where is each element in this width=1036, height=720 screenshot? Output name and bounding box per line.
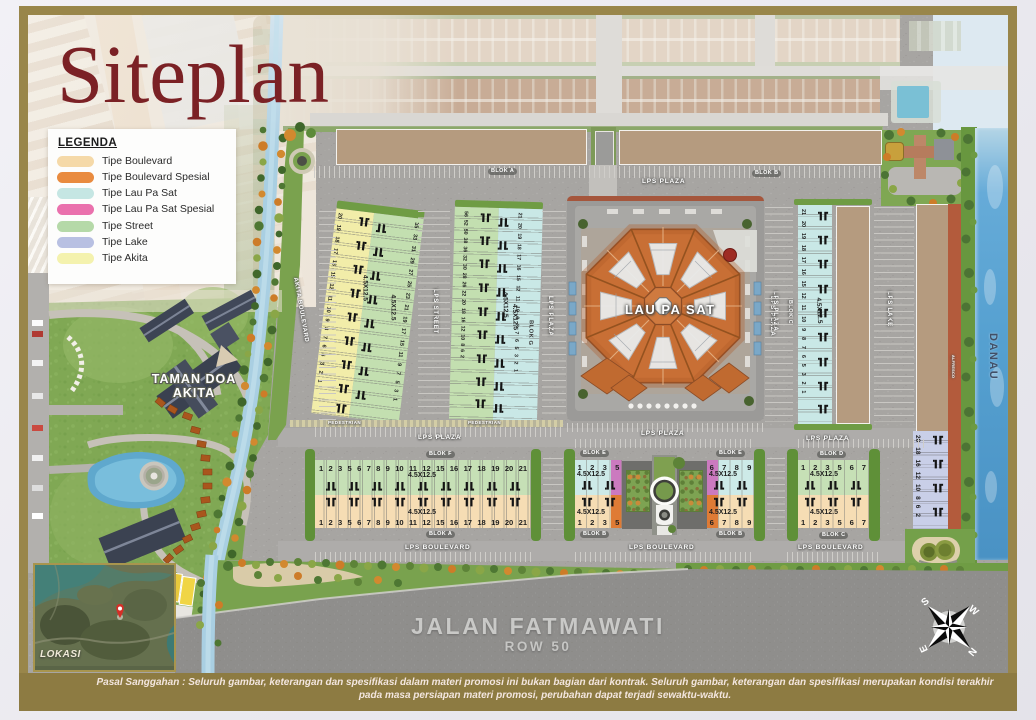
svg-text:W: W <box>966 604 981 619</box>
svg-text:S: S <box>919 596 931 609</box>
svg-text:N: N <box>965 645 978 658</box>
svg-text:E: E <box>918 643 931 654</box>
